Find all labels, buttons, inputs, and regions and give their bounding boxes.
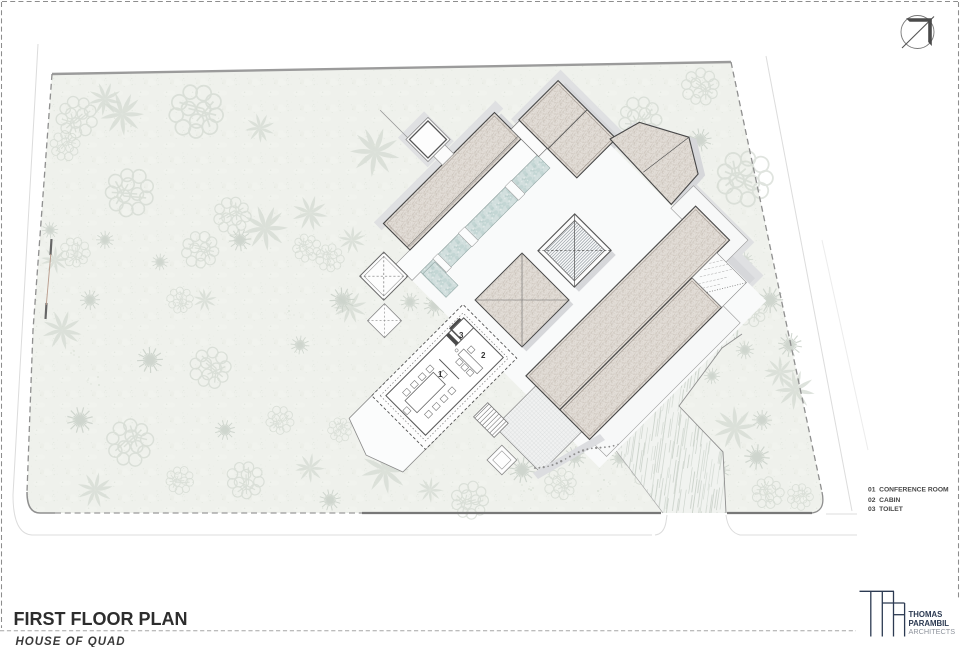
svg-text:3: 3 [459,331,464,340]
svg-text:03 TOILET: 03 TOILET [868,506,904,513]
svg-text:1: 1 [438,370,443,379]
svg-text:01 CONFERENCE ROOM: 01 CONFERENCE ROOM [868,487,949,494]
svg-text:02 CABIN: 02 CABIN [868,497,901,504]
svg-text:2: 2 [481,351,486,360]
svg-text:THOMAS: THOMAS [909,610,943,619]
svg-text:FIRST FLOOR PLAN: FIRST FLOOR PLAN [14,609,188,629]
svg-text:ARCHITECTS: ARCHITECTS [909,627,956,636]
svg-text:HOUSE OF QUAD: HOUSE OF QUAD [16,636,126,647]
